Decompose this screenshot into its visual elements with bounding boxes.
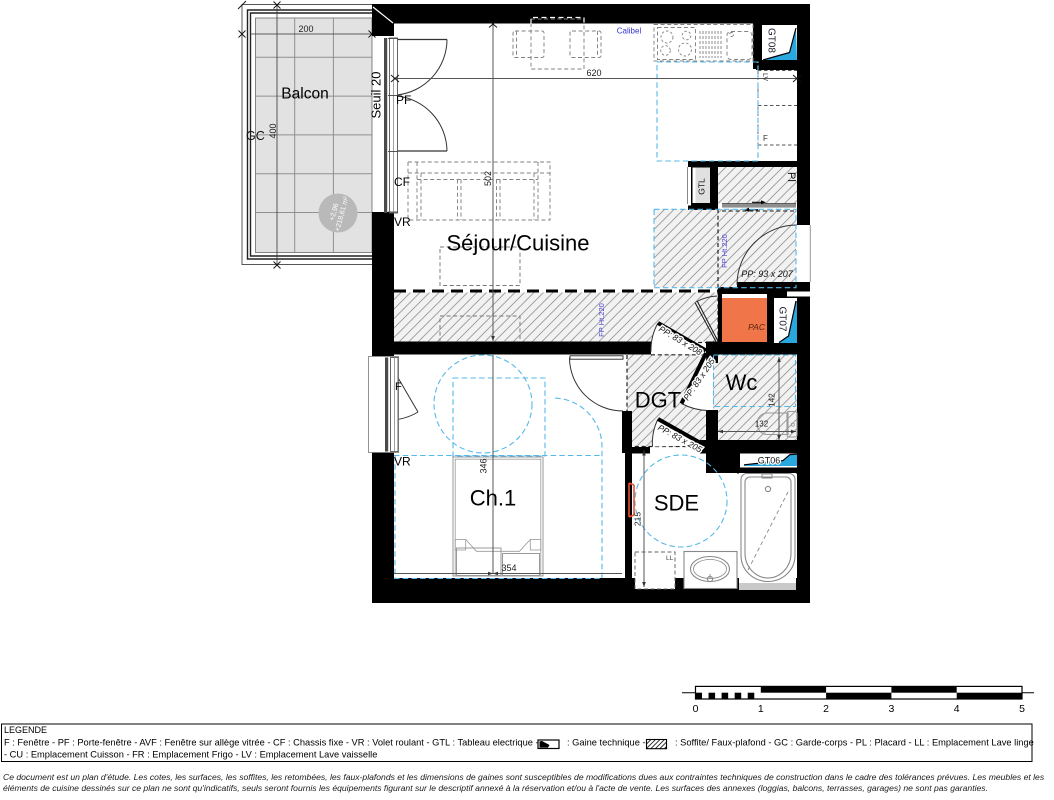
svg-text:VR: VR xyxy=(394,215,411,229)
svg-text:354: 354 xyxy=(501,563,516,573)
svg-text:SDE: SDE xyxy=(654,491,699,516)
svg-text:3: 3 xyxy=(888,703,894,715)
svg-text:VR: VR xyxy=(394,455,411,469)
svg-text:Balcon: Balcon xyxy=(281,86,328,103)
svg-text:0: 0 xyxy=(693,703,699,715)
svg-text:F : Fenêtre - PF : Porte-fenêt: F : Fenêtre - PF : Porte-fenêtre - AVF :… xyxy=(4,738,539,748)
svg-text:FP Ht.220: FP Ht.220 xyxy=(597,303,606,337)
svg-text:1: 1 xyxy=(758,703,764,715)
svg-text:Pl: Pl xyxy=(785,172,797,182)
svg-text:400: 400 xyxy=(268,123,278,138)
svg-text:200: 200 xyxy=(298,24,313,34)
svg-text:5: 5 xyxy=(1019,703,1025,715)
svg-text:GT07: GT07 xyxy=(777,306,788,331)
svg-text:PAC: PAC xyxy=(748,322,766,332)
svg-text:Seuil 20: Seuil 20 xyxy=(369,72,384,119)
svg-text:620: 620 xyxy=(586,68,601,78)
svg-text:LV: LV xyxy=(761,73,768,81)
svg-text:502: 502 xyxy=(483,171,493,186)
svg-text:éléments de cuisine dessinés s: éléments de cuisine dessinés sur ce plan… xyxy=(3,783,988,793)
svg-text:346: 346 xyxy=(479,458,489,473)
svg-text:DGT: DGT xyxy=(635,388,681,413)
svg-text:F: F xyxy=(395,381,402,393)
svg-text:GTL: GTL xyxy=(697,178,707,195)
svg-text:Calibel: Calibel xyxy=(617,27,642,36)
svg-text:GT06: GT06 xyxy=(758,456,781,466)
svg-text:LL: LL xyxy=(666,555,674,562)
svg-text:CF: CF xyxy=(394,175,410,189)
svg-text:PF: PF xyxy=(396,93,411,107)
svg-text:GC: GC xyxy=(246,129,265,143)
svg-text:FP Ht.220: FP Ht.220 xyxy=(720,234,729,268)
svg-text:142: 142 xyxy=(768,393,777,407)
svg-text:Wc: Wc xyxy=(726,370,758,395)
svg-text:Séjour/Cuisine: Séjour/Cuisine xyxy=(446,231,589,256)
svg-text:: Gaine technique -: : Gaine technique - xyxy=(567,738,646,748)
svg-text:132: 132 xyxy=(755,420,769,429)
svg-text:- CU : Emplacement Cuisson - F: - CU : Emplacement Cuisson - FR : Emplac… xyxy=(4,750,377,760)
svg-text:GT08: GT08 xyxy=(766,28,777,53)
svg-text:PP: 93 x 207: PP: 93 x 207 xyxy=(741,269,794,279)
svg-text:LEGENDE: LEGENDE xyxy=(4,725,47,735)
svg-text:4: 4 xyxy=(954,703,960,715)
svg-text:F: F xyxy=(763,134,768,143)
svg-text:: Soffite/ Faux-plafond - GC :: : Soffite/ Faux-plafond - GC : Garde-cor… xyxy=(675,738,1034,748)
svg-text:2: 2 xyxy=(823,703,829,715)
svg-text:Ce document est un plan d'étud: Ce document est un plan d'étude. Les cot… xyxy=(3,772,1045,782)
svg-text:Ch.1: Ch.1 xyxy=(470,486,516,511)
